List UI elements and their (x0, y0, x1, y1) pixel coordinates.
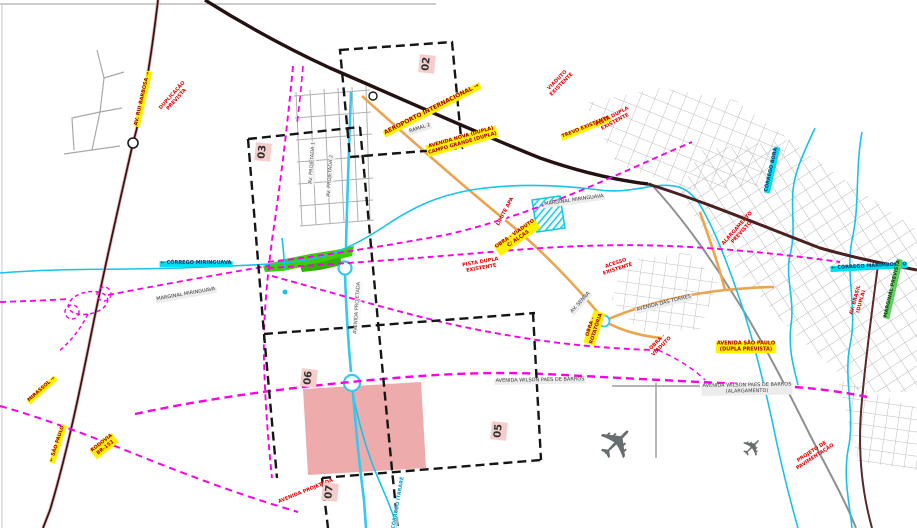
map-label: ← CÓRREGO MIRINGUAVA (160, 261, 233, 267)
map-label: AVENIDA NOVA (DUPLA) CAMPO GRANDE (DUPLA… (425, 125, 498, 156)
map-label: OBRA - VIADUTO (646, 331, 674, 359)
map-label: MARGINAL MIRINGUAVA (543, 194, 605, 208)
map-label: OBRA - ROTATÓRIA (583, 310, 604, 346)
map-label: AVENIDA WILSON PAES DE BARROS (ALARGAMEN… (701, 382, 792, 395)
map-label: PROJETO DE PAVIMENTAÇÃO (792, 438, 837, 473)
sheet-number: 06 (300, 368, 318, 387)
map-label: MIRASSOL → (26, 376, 57, 405)
map-label: CÓRREGO BORÁ (764, 146, 780, 193)
map-label: AV. BRASIL (DUPLA) (849, 284, 869, 318)
sheet-number: 03 (254, 142, 272, 161)
map-label: PISTA DUPLA EXISTENTE (594, 106, 634, 134)
map-label: ACESSO EXISTENTE (600, 256, 635, 277)
map-label: LIMITE APA (496, 196, 517, 228)
map-label: AV. PROJETADA 2 (327, 154, 336, 198)
map-label: AV. SENNA (569, 291, 592, 316)
map-label: ← SÃO PAULO (49, 424, 67, 463)
map-label: AV. RUI BARBOSA → (134, 71, 152, 128)
map-label: CÓRREGO ITARARÉ (391, 475, 406, 528)
map-label: VIADUTO EXISTENTE (544, 67, 575, 98)
map-label: MARGINAL MIRINGUAVA (155, 287, 217, 303)
map-label: AVENIDA WILSON PAES DE BARROS (495, 377, 586, 384)
map-label: AVENIDA PROJETADA (353, 281, 363, 335)
map-label: DUPLICAÇÃO PREVISTA (158, 80, 192, 116)
map-label: PISTA DUPLA EXISTENTE (461, 257, 501, 275)
airplane-icon: ✈ (736, 431, 770, 465)
map-label: RODOVIA BR-153 (89, 433, 118, 459)
map-label: AEROPORTO INTERNACIONAL → (382, 82, 481, 137)
map-label: AVENIDA SÃO PAULO (DUPLA PREVISTA) (716, 341, 776, 353)
city-plan-map: AV. RUI BARBOSA →DUPLICAÇÃO PREVISTAAERO… (0, 0, 917, 528)
map-label: ALARGAMENTO PREVISTO (721, 210, 760, 251)
sheet-number: 05 (490, 421, 508, 440)
map-label: AV. PROJETADA 1 (309, 141, 318, 185)
labels-layer: AV. RUI BARBOSA →DUPLICAÇÃO PREVISTAAERO… (0, 0, 917, 528)
map-label: RAMAL 2 (408, 123, 433, 136)
airplane-icon: ✈ (587, 413, 647, 473)
map-label: AVENIDA DAS TORRES (635, 294, 693, 314)
sheet-number: 02 (418, 54, 436, 73)
sheet-number: 07 (321, 482, 339, 501)
